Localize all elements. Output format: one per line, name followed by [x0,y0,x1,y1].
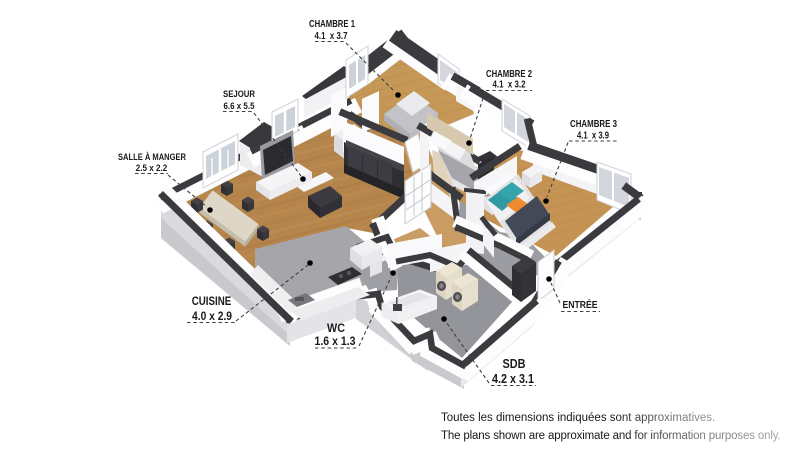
svg-text:4.0 x 2.9: 4.0 x 2.9 [192,309,232,323]
svg-text:CHAMBRE 2: CHAMBRE 2 [486,69,532,80]
svg-text:CHAMBRE 1: CHAMBRE 1 [309,19,355,30]
svg-text:Toutes les dimensions indiquée: Toutes les dimensions indiquées sont app… [441,412,715,424]
svg-text:4.2 x 3.1: 4.2 x 3.1 [492,372,534,386]
svg-text:2.5 x 2.2: 2.5 x 2.2 [136,163,168,174]
svg-text:4.1 x 3.2: 4.1 x 3.2 [493,80,526,91]
svg-text:4.1 x 3.7: 4.1 x 3.7 [315,31,348,42]
svg-text:4.1 x 3.9: 4.1 x 3.9 [577,131,609,142]
svg-text:1.6 x 1.3: 1.6 x 1.3 [315,334,356,348]
svg-text:6.6 x 5.5: 6.6 x 5.5 [224,101,256,112]
svg-text:SDB: SDB [503,357,526,371]
svg-text:CUISINE: CUISINE [192,294,232,308]
svg-text:ENTRÉE: ENTRÉE [563,298,598,311]
svg-text:SEJOUR: SEJOUR [223,89,255,100]
svg-text:WC: WC [327,321,345,335]
svg-text:CHAMBRE 3: CHAMBRE 3 [570,119,617,130]
svg-text:SALLE À MANGER: SALLE À MANGER [118,152,186,163]
svg-text:The plans shown are approximat: The plans shown are approximate and for … [441,430,781,442]
